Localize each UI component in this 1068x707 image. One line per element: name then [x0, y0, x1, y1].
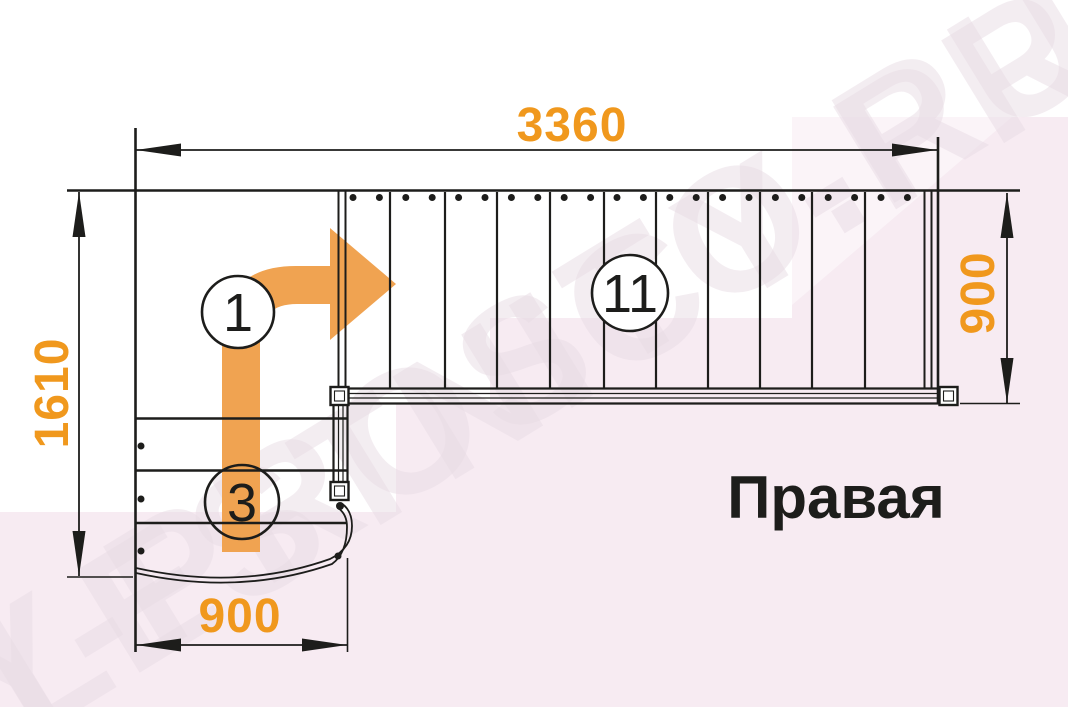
- baluster-dot: [561, 194, 568, 201]
- step-label-first: 1: [202, 276, 274, 348]
- baluster-dot: [904, 194, 911, 201]
- step-label-lower-flight-value: 3: [227, 473, 257, 533]
- page-title: Правая: [727, 464, 945, 531]
- baluster-dot: [534, 194, 541, 201]
- baluster-dot: [587, 194, 594, 201]
- baluster-dot: [508, 194, 515, 201]
- baluster-dot: [482, 194, 489, 201]
- baluster-dot: [376, 194, 383, 201]
- step-label-upper-flight-value: 11: [602, 264, 658, 324]
- baluster-dot: [878, 194, 885, 201]
- baluster-dot: [350, 194, 357, 201]
- step-label-upper-flight: 11: [592, 255, 668, 331]
- baluster-dot: [402, 194, 409, 201]
- baluster-dot: [746, 194, 753, 201]
- baluster-dot: [693, 194, 700, 201]
- baluster-dot: [825, 194, 832, 201]
- baluster-dot: [429, 194, 436, 201]
- baluster-dot: [640, 194, 647, 201]
- baluster-dot: [666, 194, 673, 201]
- stair-plan-canvas: LESTNICY-PROSTO.RU LESTNICY-PROSTO.RU: [0, 0, 1068, 707]
- dimension-bottom-value: 900: [198, 590, 281, 643]
- step-label-first-value: 1: [223, 283, 253, 343]
- baluster-dot: [772, 194, 779, 201]
- baluster-dot: [614, 194, 621, 201]
- baluster-dot: [851, 194, 858, 201]
- baluster-dot: [719, 194, 726, 201]
- dimension-right-value: 900: [952, 251, 1005, 334]
- baluster-dot: [798, 194, 805, 201]
- dimension-left-value: 1610: [26, 338, 79, 449]
- dimension-top-value: 3360: [517, 99, 628, 152]
- baluster-dot: [455, 194, 462, 201]
- stair-plan-diagram: LESTNICY-PROSTO.RU LESTNICY-PROSTO.RU: [0, 0, 1068, 707]
